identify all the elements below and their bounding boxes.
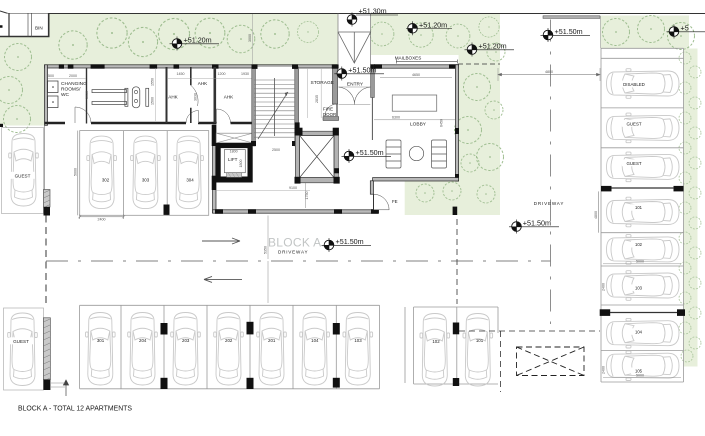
svg-text:GUEST: GUEST <box>13 339 29 344</box>
svg-text:2400: 2400 <box>602 283 606 291</box>
svg-text:2500: 2500 <box>272 148 280 152</box>
svg-text:CHANGING: CHANGING <box>61 81 87 87</box>
svg-text:303: 303 <box>142 178 150 183</box>
svg-text:6300: 6300 <box>392 116 400 120</box>
svg-text:203: 203 <box>182 338 190 343</box>
svg-text:+51.50m: +51.50m <box>348 66 376 75</box>
svg-text:104: 104 <box>635 329 643 334</box>
svg-text:AHK: AHK <box>168 95 178 100</box>
svg-text:104: 104 <box>311 338 319 343</box>
svg-text:4800: 4800 <box>545 70 553 74</box>
svg-text:LIFT: LIFT <box>228 157 238 162</box>
svg-text:2400: 2400 <box>98 218 106 222</box>
svg-text:5350: 5350 <box>264 246 268 254</box>
svg-text:DISABLED: DISABLED <box>623 82 645 87</box>
svg-text:GUEST: GUEST <box>626 161 641 166</box>
svg-text:101: 101 <box>476 338 484 343</box>
svg-text:3000: 3000 <box>248 34 252 42</box>
svg-text:9100: 9100 <box>289 186 297 190</box>
svg-text:+51.50m: +51.50m <box>356 148 384 157</box>
svg-text:ENTRY: ENTRY <box>347 82 364 88</box>
svg-text:1930: 1930 <box>241 72 249 76</box>
svg-text:FIRE: FIRE <box>323 107 333 112</box>
svg-text:302: 302 <box>102 178 110 183</box>
svg-text:FE: FE <box>392 199 398 204</box>
svg-text:AHK: AHK <box>224 95 234 100</box>
svg-text:1200: 1200 <box>218 72 226 76</box>
svg-text:2000: 2000 <box>69 74 77 78</box>
svg-text:+5: +5 <box>681 24 689 33</box>
svg-text:+51.50m: +51.50m <box>555 27 583 36</box>
svg-text:+51.20m: +51.20m <box>419 20 447 29</box>
svg-text:4800: 4800 <box>594 211 598 219</box>
svg-text:WC: WC <box>61 92 70 98</box>
svg-text:1800: 1800 <box>239 160 243 168</box>
svg-text:201: 201 <box>268 338 276 343</box>
svg-text:3030: 3030 <box>194 93 198 101</box>
svg-text:AHK: AHK <box>198 81 208 86</box>
svg-text:+51.30m: +51.30m <box>359 6 387 15</box>
svg-text:500: 500 <box>48 74 54 78</box>
svg-text:DOOR: DOOR <box>323 112 336 117</box>
svg-text:1500: 1500 <box>151 97 155 105</box>
svg-text:301: 301 <box>97 338 105 343</box>
svg-text:5000: 5000 <box>636 260 644 264</box>
svg-text:BLOCK A - TOTAL 12 APARTMENTS: BLOCK A - TOTAL 12 APARTMENTS <box>18 406 132 413</box>
svg-text:1800: 1800 <box>230 150 238 154</box>
svg-text:204: 204 <box>139 338 147 343</box>
svg-text:+51.20m: +51.20m <box>479 42 507 51</box>
svg-text:5000: 5000 <box>73 168 77 176</box>
svg-text:1450: 1450 <box>177 72 185 76</box>
svg-text:103: 103 <box>635 285 643 290</box>
svg-text:5000: 5000 <box>636 373 644 377</box>
svg-text:1750: 1750 <box>305 192 309 200</box>
svg-text:BIN: BIN <box>35 26 43 31</box>
svg-text:MAILBOXES: MAILBOXES <box>395 56 422 61</box>
svg-text:DRIVEWAY: DRIVEWAY <box>278 250 308 255</box>
svg-text:2400: 2400 <box>602 366 606 374</box>
svg-text:2835: 2835 <box>315 95 319 103</box>
svg-text:102: 102 <box>635 242 643 247</box>
svg-text:STORAGE: STORAGE <box>311 80 334 86</box>
svg-text:GUEST: GUEST <box>626 121 641 126</box>
svg-text:1550: 1550 <box>151 78 155 86</box>
svg-text:LOBBY: LOBBY <box>410 122 427 128</box>
svg-text:3030: 3030 <box>85 91 89 99</box>
svg-text:+51.50m: +51.50m <box>336 237 364 246</box>
svg-text:102: 102 <box>432 339 440 344</box>
svg-text:DRIVEWAY: DRIVEWAY <box>534 201 564 206</box>
svg-text:ROOMS/: ROOMS/ <box>61 87 81 93</box>
svg-text:304: 304 <box>186 178 194 183</box>
svg-text:202: 202 <box>225 338 233 343</box>
svg-text:101: 101 <box>635 205 643 210</box>
svg-text:+51.50m: +51.50m <box>523 219 551 228</box>
svg-text:103: 103 <box>354 338 362 343</box>
svg-text:+51.20m: +51.20m <box>184 36 212 45</box>
svg-text:GUEST: GUEST <box>15 174 31 179</box>
svg-text:6450: 6450 <box>440 119 444 127</box>
svg-text:BLOCK A.: BLOCK A. <box>268 236 325 250</box>
svg-text:4650: 4650 <box>412 73 420 77</box>
